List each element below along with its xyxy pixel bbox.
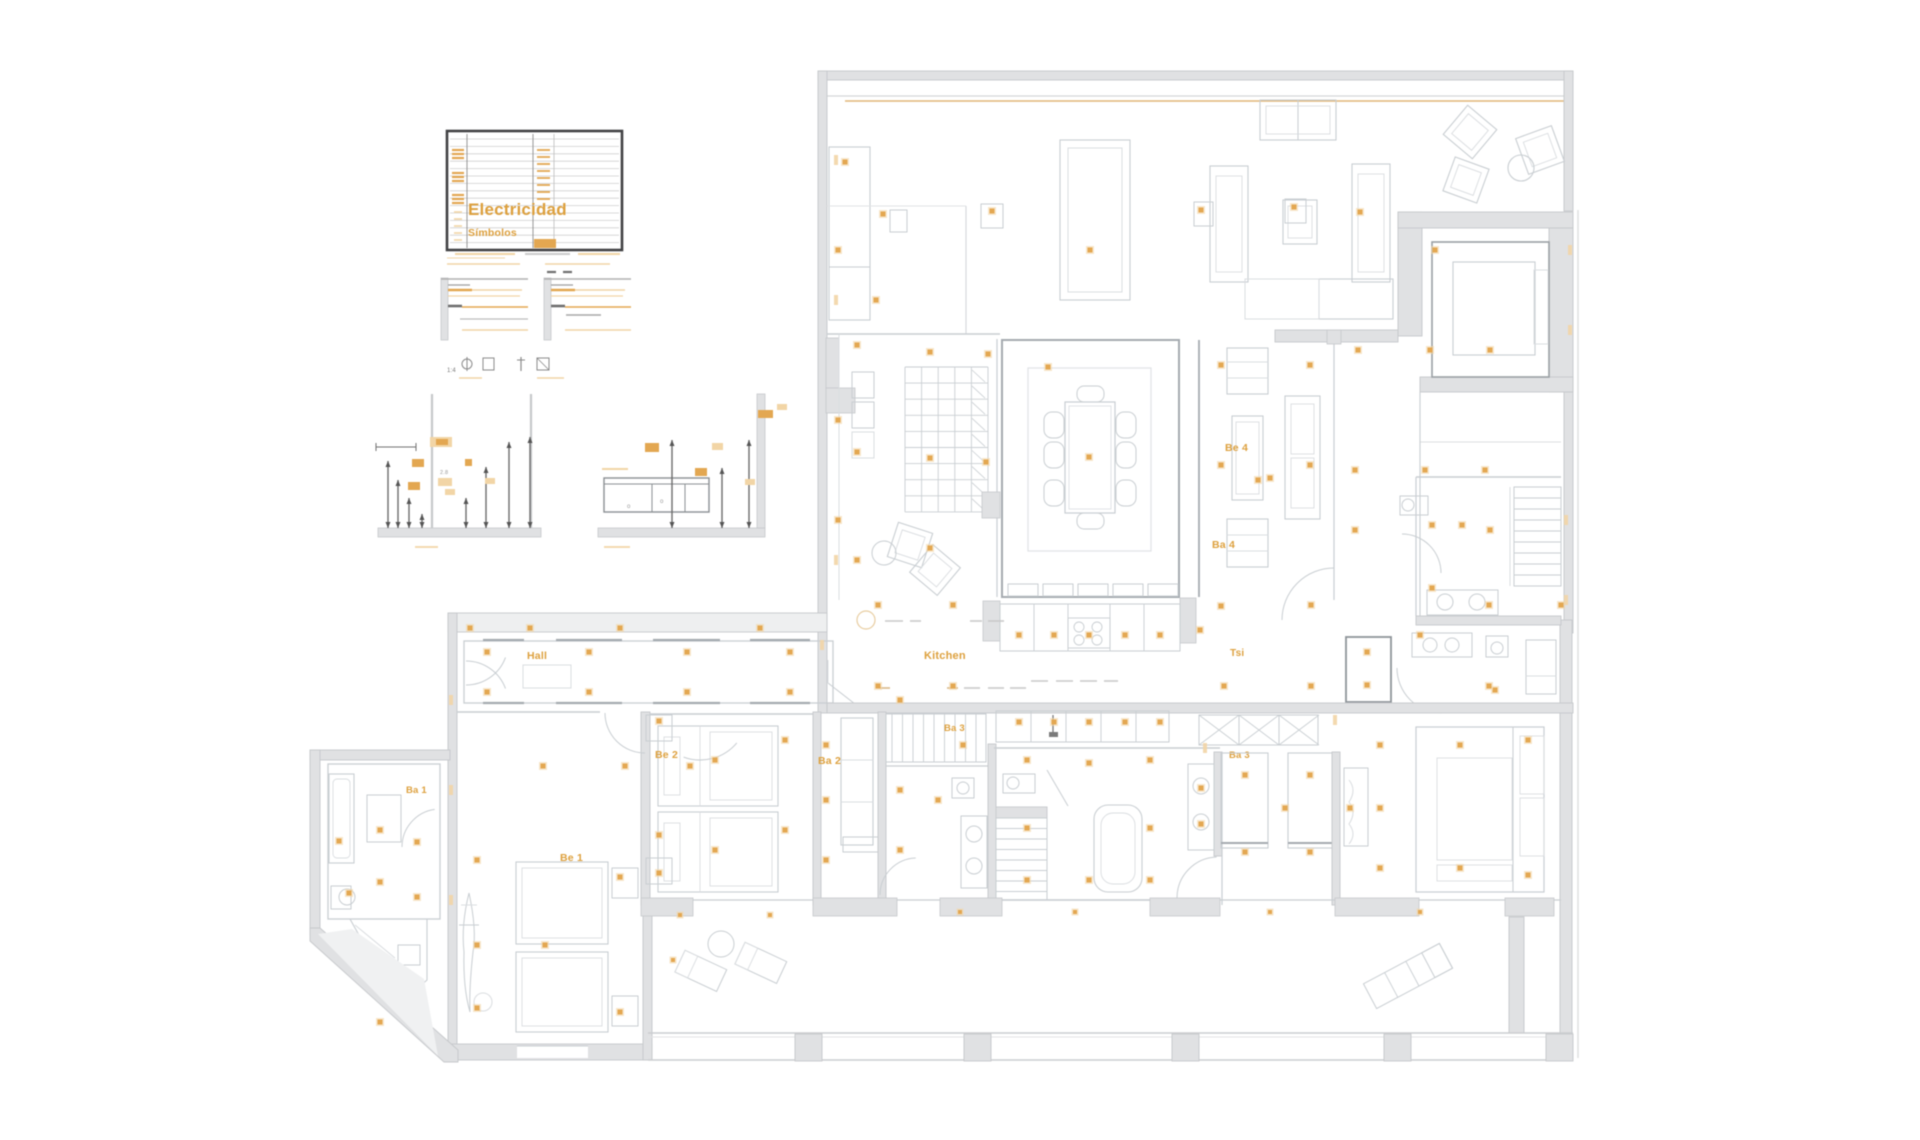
svg-text:Ba 2: Ba 2	[818, 755, 841, 767]
svg-text:Ba 1: Ba 1	[406, 785, 427, 796]
svg-text:Be 2: Be 2	[655, 749, 678, 761]
svg-text:Be 4: Be 4	[1225, 442, 1248, 454]
svg-text:Ba 3: Ba 3	[1229, 750, 1250, 761]
svg-text:Be 1: Be 1	[560, 852, 583, 864]
svg-text:Electricidad: Electricidad	[468, 200, 567, 219]
svg-text:Kitchen: Kitchen	[924, 650, 966, 662]
svg-text:1:4: 1:4	[447, 368, 456, 374]
svg-text:o: o	[660, 499, 664, 505]
svg-text:Ba 3: Ba 3	[944, 723, 965, 734]
svg-text:Símbolos: Símbolos	[468, 227, 517, 239]
svg-text:o: o	[627, 504, 631, 510]
svg-text:2.8: 2.8	[440, 470, 448, 476]
svg-text:Tsi: Tsi	[1230, 648, 1244, 659]
svg-text:Hall: Hall	[527, 650, 547, 662]
svg-text:Ba 4: Ba 4	[1212, 539, 1235, 551]
